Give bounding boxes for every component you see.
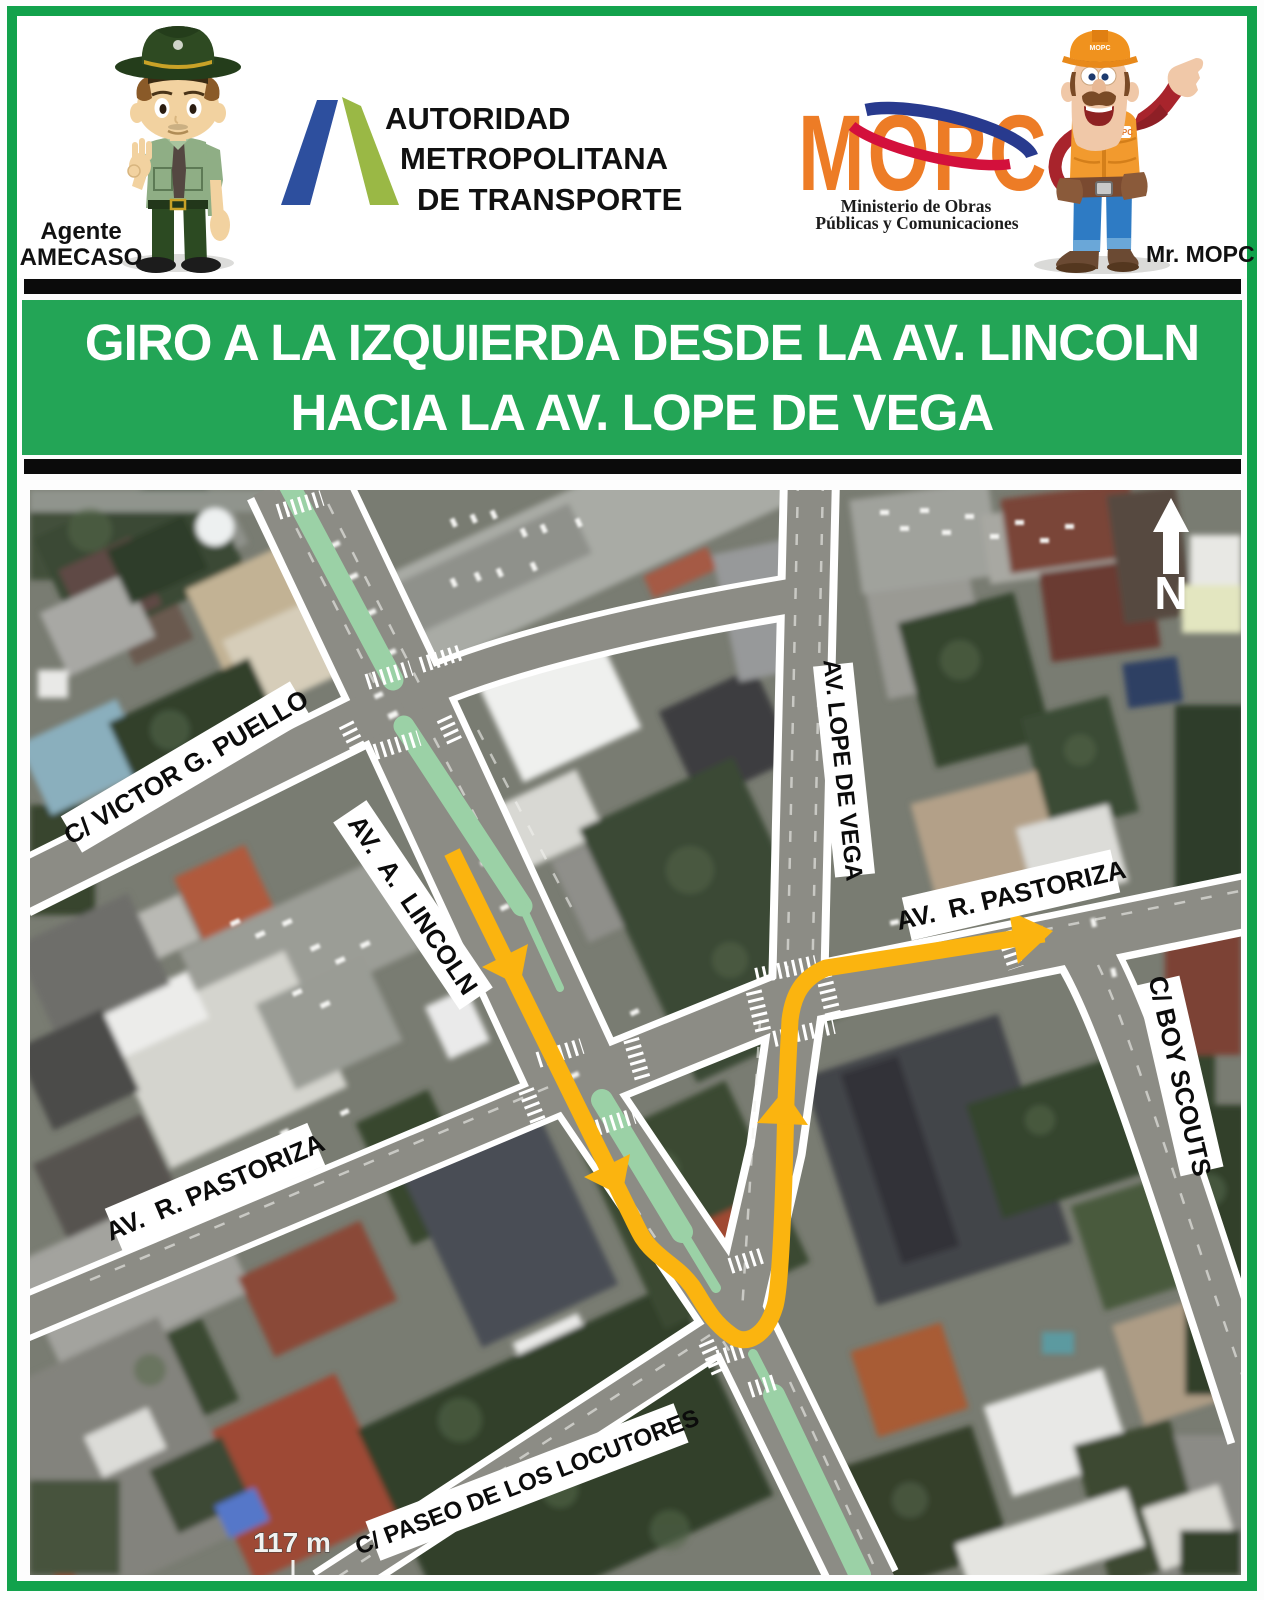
svg-text:MOPC: MOPC — [1090, 45, 1111, 52]
svg-text:N: N — [1154, 567, 1187, 619]
svg-text:Públicas y Comunicaciones: Públicas y Comunicaciones — [815, 213, 1018, 233]
svg-text:117 m: 117 m — [253, 1527, 331, 1558]
